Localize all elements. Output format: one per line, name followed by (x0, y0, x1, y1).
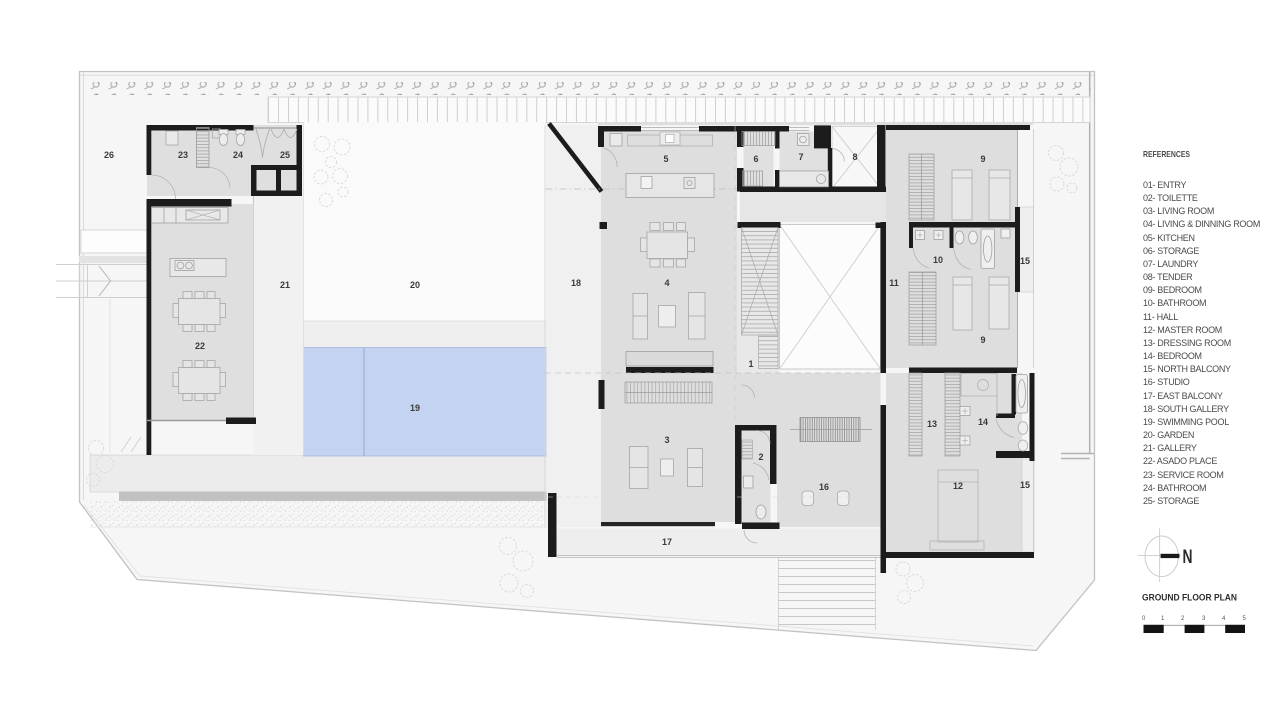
svg-text:08- TENDER: 08- TENDER (1143, 272, 1193, 282)
svg-text:05- KITCHEN: 05- KITCHEN (1143, 233, 1195, 243)
svg-text:2: 2 (758, 452, 763, 462)
svg-text:13: 13 (927, 419, 937, 429)
svg-text:13- DRESSING ROOM: 13- DRESSING ROOM (1143, 338, 1231, 348)
svg-text:17- EAST BALCONY: 17- EAST BALCONY (1143, 391, 1223, 401)
svg-text:06- STORAGE: 06- STORAGE (1143, 246, 1199, 256)
svg-text:19: 19 (410, 403, 420, 413)
svg-text:22- ASADO PLACE: 22- ASADO PLACE (1143, 456, 1217, 466)
svg-text:5: 5 (663, 154, 668, 164)
svg-text:25: 25 (280, 150, 290, 160)
svg-text:6: 6 (753, 154, 758, 164)
svg-text:8: 8 (852, 152, 857, 162)
svg-text:17: 17 (662, 537, 672, 547)
svg-text:24- BATHROOM: 24- BATHROOM (1143, 483, 1206, 493)
svg-text:24: 24 (233, 150, 243, 160)
svg-text:3: 3 (664, 435, 669, 445)
svg-text:9: 9 (980, 335, 985, 345)
svg-text:01- ENTRY: 01- ENTRY (1143, 180, 1186, 190)
svg-text:12- MASTER ROOM: 12- MASTER ROOM (1143, 325, 1222, 335)
svg-text:02- TOILETTE: 02- TOILETTE (1143, 193, 1198, 203)
svg-text:GROUND FLOOR PLAN: GROUND FLOOR PLAN (1142, 593, 1237, 604)
svg-text:14: 14 (978, 417, 988, 427)
svg-text:15- NORTH BALCONY: 15- NORTH BALCONY (1143, 364, 1231, 374)
svg-text:18: 18 (571, 278, 581, 288)
svg-text:26: 26 (104, 150, 114, 160)
svg-text:20: 20 (410, 280, 420, 290)
svg-text:18- SOUTH GALLERY: 18- SOUTH GALLERY (1143, 404, 1229, 414)
svg-text:15: 15 (1020, 256, 1030, 266)
svg-text:21- GALLERY: 21- GALLERY (1143, 443, 1197, 453)
svg-text:16- STUDIO: 16- STUDIO (1143, 377, 1190, 387)
svg-text:14- BEDROOM: 14- BEDROOM (1143, 351, 1202, 361)
svg-text:22: 22 (195, 341, 205, 351)
svg-text:16: 16 (819, 482, 829, 492)
svg-text:21: 21 (280, 280, 290, 290)
svg-text:12: 12 (953, 481, 963, 491)
svg-text:19- SWIMMING POOL: 19- SWIMMING POOL (1143, 417, 1229, 427)
svg-text:10: 10 (933, 255, 943, 265)
svg-text:07- LAUNDRY: 07- LAUNDRY (1143, 259, 1198, 269)
svg-text:20- GARDEN: 20- GARDEN (1143, 430, 1194, 440)
svg-text:1: 1 (748, 359, 753, 369)
svg-text:23: 23 (178, 150, 188, 160)
svg-text:10- BATHROOM: 10- BATHROOM (1143, 298, 1206, 308)
svg-text:25- STORAGE: 25- STORAGE (1143, 496, 1199, 506)
svg-text:REFERENCES: REFERENCES (1143, 149, 1190, 159)
svg-text:15: 15 (1020, 480, 1030, 490)
svg-text:04- LIVING & DINNING ROOM: 04- LIVING & DINNING ROOM (1143, 219, 1260, 229)
svg-text:N: N (1183, 547, 1193, 568)
svg-text:9: 9 (980, 154, 985, 164)
svg-text:7: 7 (798, 152, 803, 162)
svg-text:11: 11 (889, 278, 899, 288)
svg-text:09- BEDROOM: 09- BEDROOM (1143, 285, 1202, 295)
svg-text:4: 4 (664, 278, 669, 288)
svg-text:23- SERVICE ROOM: 23- SERVICE ROOM (1143, 470, 1224, 480)
svg-text:11- HALL: 11- HALL (1143, 312, 1178, 322)
svg-text:03- LIVING ROOM: 03- LIVING ROOM (1143, 206, 1214, 216)
